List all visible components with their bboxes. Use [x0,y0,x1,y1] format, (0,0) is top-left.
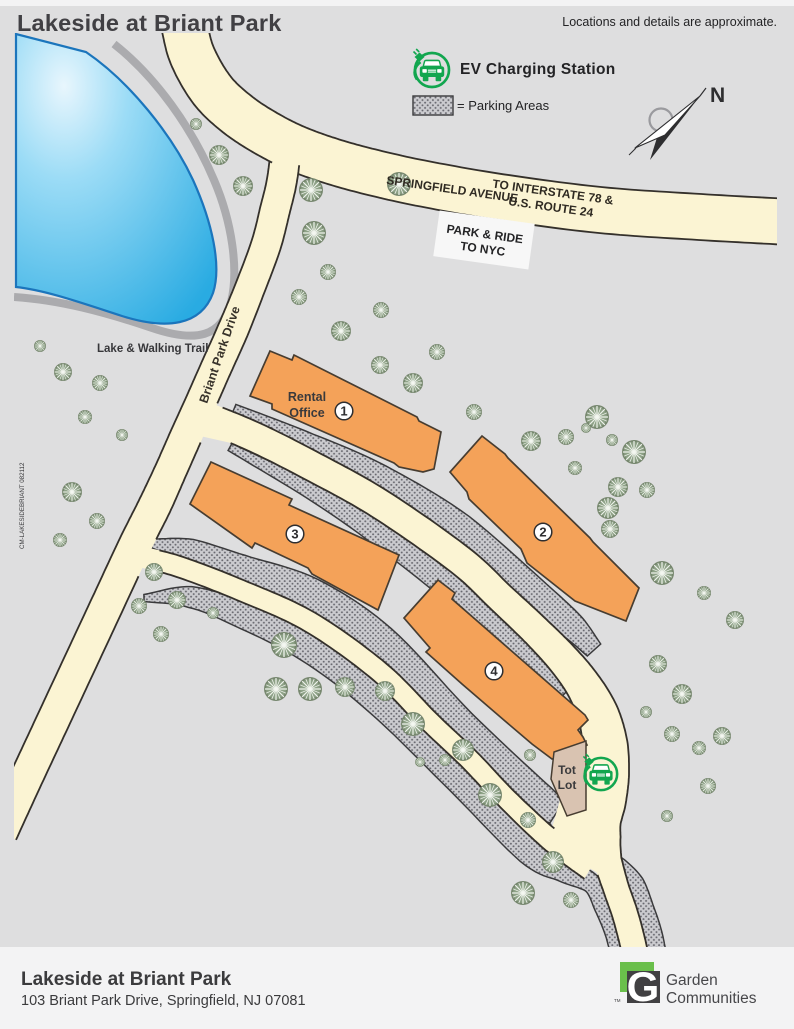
svg-text:Communities: Communities [666,990,757,1007]
svg-text:103 Briant Park Drive, Springf: 103 Briant Park Drive, Springfield, NJ 0… [21,993,306,1009]
svg-text:4: 4 [490,664,498,679]
svg-text:Lakeside at Briant Park: Lakeside at Briant Park [17,10,282,36]
svg-text:Locations and details are appr: Locations and details are approximate. [562,15,777,29]
svg-text:Tot: Tot [558,763,576,777]
svg-text:3: 3 [291,527,298,542]
svg-text:Lot: Lot [558,778,577,792]
svg-text:CM-LAKESIDEBRIANT 082112: CM-LAKESIDEBRIANT 082112 [19,462,26,549]
svg-text:1: 1 [340,404,347,419]
svg-text:= Parking Areas: = Parking Areas [457,98,550,113]
svg-text:N: N [710,84,725,107]
svg-text:Lake & Walking Trail: Lake & Walking Trail [97,343,208,355]
svg-text:EV Charging Station: EV Charging Station [460,61,616,78]
svg-text:G: G [627,963,660,1010]
svg-text:2: 2 [539,525,546,540]
svg-text:Lakeside at Briant Park: Lakeside at Briant Park [21,969,232,990]
svg-text:TM: TM [614,998,621,1003]
svg-text:Garden: Garden [666,972,718,989]
svg-text:Office: Office [289,406,324,420]
svg-text:Rental: Rental [288,390,326,404]
